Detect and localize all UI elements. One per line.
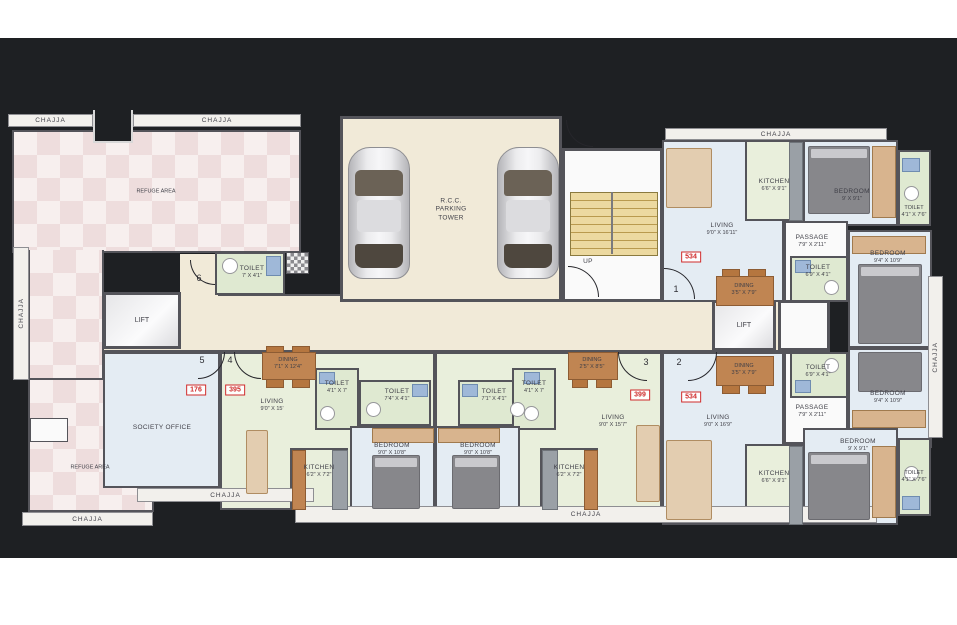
chajja-strip-right-vertical: CHAJJA [928,276,943,438]
car-right [497,147,559,279]
flat-534b-living-label: LIVING9'0" X 16'9" [704,414,732,430]
flat-534b-toilet-corner-label: TOILET4'1" X 7'6" [902,470,927,484]
unit-number-395: 395 [225,385,245,396]
kitchen-cabinet [292,450,306,510]
chajja-strip-under-office: CHAJJA [137,488,314,502]
flat-534b-toilet-mid-label: TOILET6'9" X 4'1" [806,364,831,380]
bed-pillow [375,458,417,467]
chair [748,385,766,394]
flat-395-bedroom-label: BEDROOM9'0" X 10'8" [374,442,410,458]
bed [858,352,922,392]
flat-395-kitchen-label: KITCHEN6'2" X 7'2" [304,464,335,480]
car-left [348,147,410,279]
flat-534b-dining-label: DINING3'5" X 7'9" [732,363,757,377]
shower-fixture [266,256,281,276]
flat-399-toilet-small-label: TOILET4'1" X 7' [522,380,546,396]
lift-shaft-empty [778,300,830,351]
shower-fixture [412,384,428,397]
car-windshield [355,170,403,196]
flat-399-living-label: LIVING9'0" X 15'7" [599,414,627,430]
wardrobe [438,428,500,443]
chajja-strip-top-right: CHAJJA [665,128,887,140]
flat-395-toilet-wide-label: TOILET7'4" X 4'1" [385,388,410,404]
unit-number-399: 399 [630,390,650,401]
parking-line-2: PARKING [436,206,467,214]
unit-number-176: 176 [186,385,206,396]
shower-fixture [902,158,920,172]
shower-fixture [462,384,478,397]
chajja-label: CHAJJA [761,131,792,138]
unit-number-534-bottom: 534 [681,392,701,403]
bed-pillow [811,455,867,464]
flat-399-kitchen-label: KITCHEN6'2" X 7'2" [554,464,585,480]
flat-534t-dining-label: DINING3'5" X 7'9" [732,283,757,297]
wc-fixture [320,406,335,421]
bed [858,264,922,344]
chajja-label: CHAJJA [35,117,66,124]
car-windshield [504,170,552,196]
door-number-5: 5 [199,355,204,365]
wc-fixture [904,186,919,201]
flat-534b-bedroom-big-label: BEDROOM9'4" X 10'9" [870,390,906,406]
wardrobe [372,428,434,443]
wc-fixture [366,402,381,417]
wc-fixture [524,406,539,421]
door-number-3: 3 [643,357,648,367]
wc-fixture [222,258,238,274]
car-roof [506,200,550,232]
chajja-label: CHAJJA [571,511,602,518]
flat-534b-passage-label: PASSAGE7'9" X 2'11" [796,404,829,420]
chajja-label: CHAJJA [72,516,103,523]
bed [808,146,870,214]
flat-395-toilet-small-label: TOILET4'1" X 7' [325,380,349,396]
wc-fixture [510,402,525,417]
lift-label: LIFT [135,317,149,324]
flat-534t-toilet-mid-label: TOILET6'9" X 4'1" [806,264,831,280]
lift-right: LIFT [712,300,776,351]
wardrobe [872,446,896,518]
sofa [666,148,712,208]
refuge-cutout [30,418,68,442]
door-number-4: 4 [227,355,232,365]
car-rear-window [355,244,403,268]
up-label: UP [583,258,593,266]
door-number-1: 1 [673,284,678,294]
door-number-2: 2 [676,357,681,367]
chair [292,379,310,388]
refuge-area-label: REFUGE AREA [136,188,175,195]
chajja-label: CHAJJA [932,342,939,373]
society-office-text: SOCIETY OFFICE [133,424,191,432]
bed [808,452,870,520]
flat-534t-toilet-corner-label: TOILET4'1" X 7'6" [902,205,927,219]
unit-number-534-top: 534 [681,252,701,263]
stair-divider [611,192,613,254]
chajja-strip-left-vertical: CHAJJA [13,247,29,380]
lift-label: LIFT [737,322,751,329]
flat-534t-bedroom-small-label: BEDROOM9' X 9'1" [834,188,870,204]
chajja-strip-top-left-2: CHAJJA [133,114,301,127]
flat-395-living-label: LIVING9'0" X 15' [260,398,283,414]
floor-plan-canvas: CHAJJA CHAJJA CHAJJA CHAJJA CHAJJA CHAJJ… [0,0,957,625]
sofa [636,425,660,502]
lift-left: LIFT [103,292,181,349]
flat-534b-bedroom-small-label: BEDROOM9' X 9'1" [840,438,876,454]
stair-treads [570,192,658,256]
bed-pillow [455,458,497,467]
wardrobe [852,410,926,428]
bed [452,455,500,509]
parking-label: R.C.C. PARKING TOWER [436,197,467,222]
refuge-area-text: REFUGE AREA [136,188,175,195]
hall-toilet-label: TOILET7' X 4'1" [240,265,264,281]
duct-shaft [286,252,309,274]
flat-534b-kitchen-label: KITCHEN6'6" X 9'1" [759,470,790,486]
wc-fixture [824,280,839,295]
chajja-label: CHAJJA [18,298,25,329]
chajja-label: CHAJJA [202,117,233,124]
chair [572,379,588,388]
bed [372,455,420,509]
kitchen-cabinet [584,450,598,510]
flat-534t-bedroom-big-label: BEDROOM9'4" X 10'9" [870,250,906,266]
parking-line-3: TOWER [436,214,467,222]
up-text: UP [583,258,593,266]
chajja-strip-bottom-left: CHAJJA [22,512,153,526]
shower-fixture [902,496,920,510]
refuge-area-label: REFUGE AREA [70,464,109,471]
car-roof [357,200,401,232]
car-rear-window [504,244,552,268]
bed-pillow [861,267,919,276]
top-edge-notch [93,110,133,143]
sofa [666,440,712,520]
refuge-area-text: REFUGE AREA [70,464,109,471]
flat-395-dining-label: DINING7'1" X 12'4" [274,357,302,371]
bed-pillow [811,149,867,158]
flat-399-toilet-wide-label: TOILET7'1" X 4'1" [482,388,507,404]
society-office-label: SOCIETY OFFICE [133,424,191,432]
shower-fixture [795,380,811,393]
door-number-6: 6 [196,273,201,283]
parking-line-1: R.C.C. [436,197,467,205]
chair [596,379,612,388]
flat-534t-kitchen-label: KITCHEN6'6" X 9'1" [759,178,790,194]
flat-534t-living-label: LIVING9'0" X 16'11" [707,222,738,238]
chair [266,379,284,388]
kitchen-counter [789,142,803,221]
chajja-label: CHAJJA [210,492,241,499]
wardrobe [872,146,896,218]
kitchen-counter [542,450,558,510]
chajja-strip-top-left-1: CHAJJA [8,114,93,127]
flat-399-dining-label: DINING2'5" X 8'5" [580,357,605,371]
chair [722,385,740,394]
sofa [246,430,268,494]
kitchen-counter [332,450,348,510]
flat-534t-passage-label: PASSAGE7'9" X 2'11" [796,234,829,250]
kitchen-counter [789,446,803,525]
flat-399-bedroom-label: BEDROOM9'0" X 10'8" [460,442,496,458]
